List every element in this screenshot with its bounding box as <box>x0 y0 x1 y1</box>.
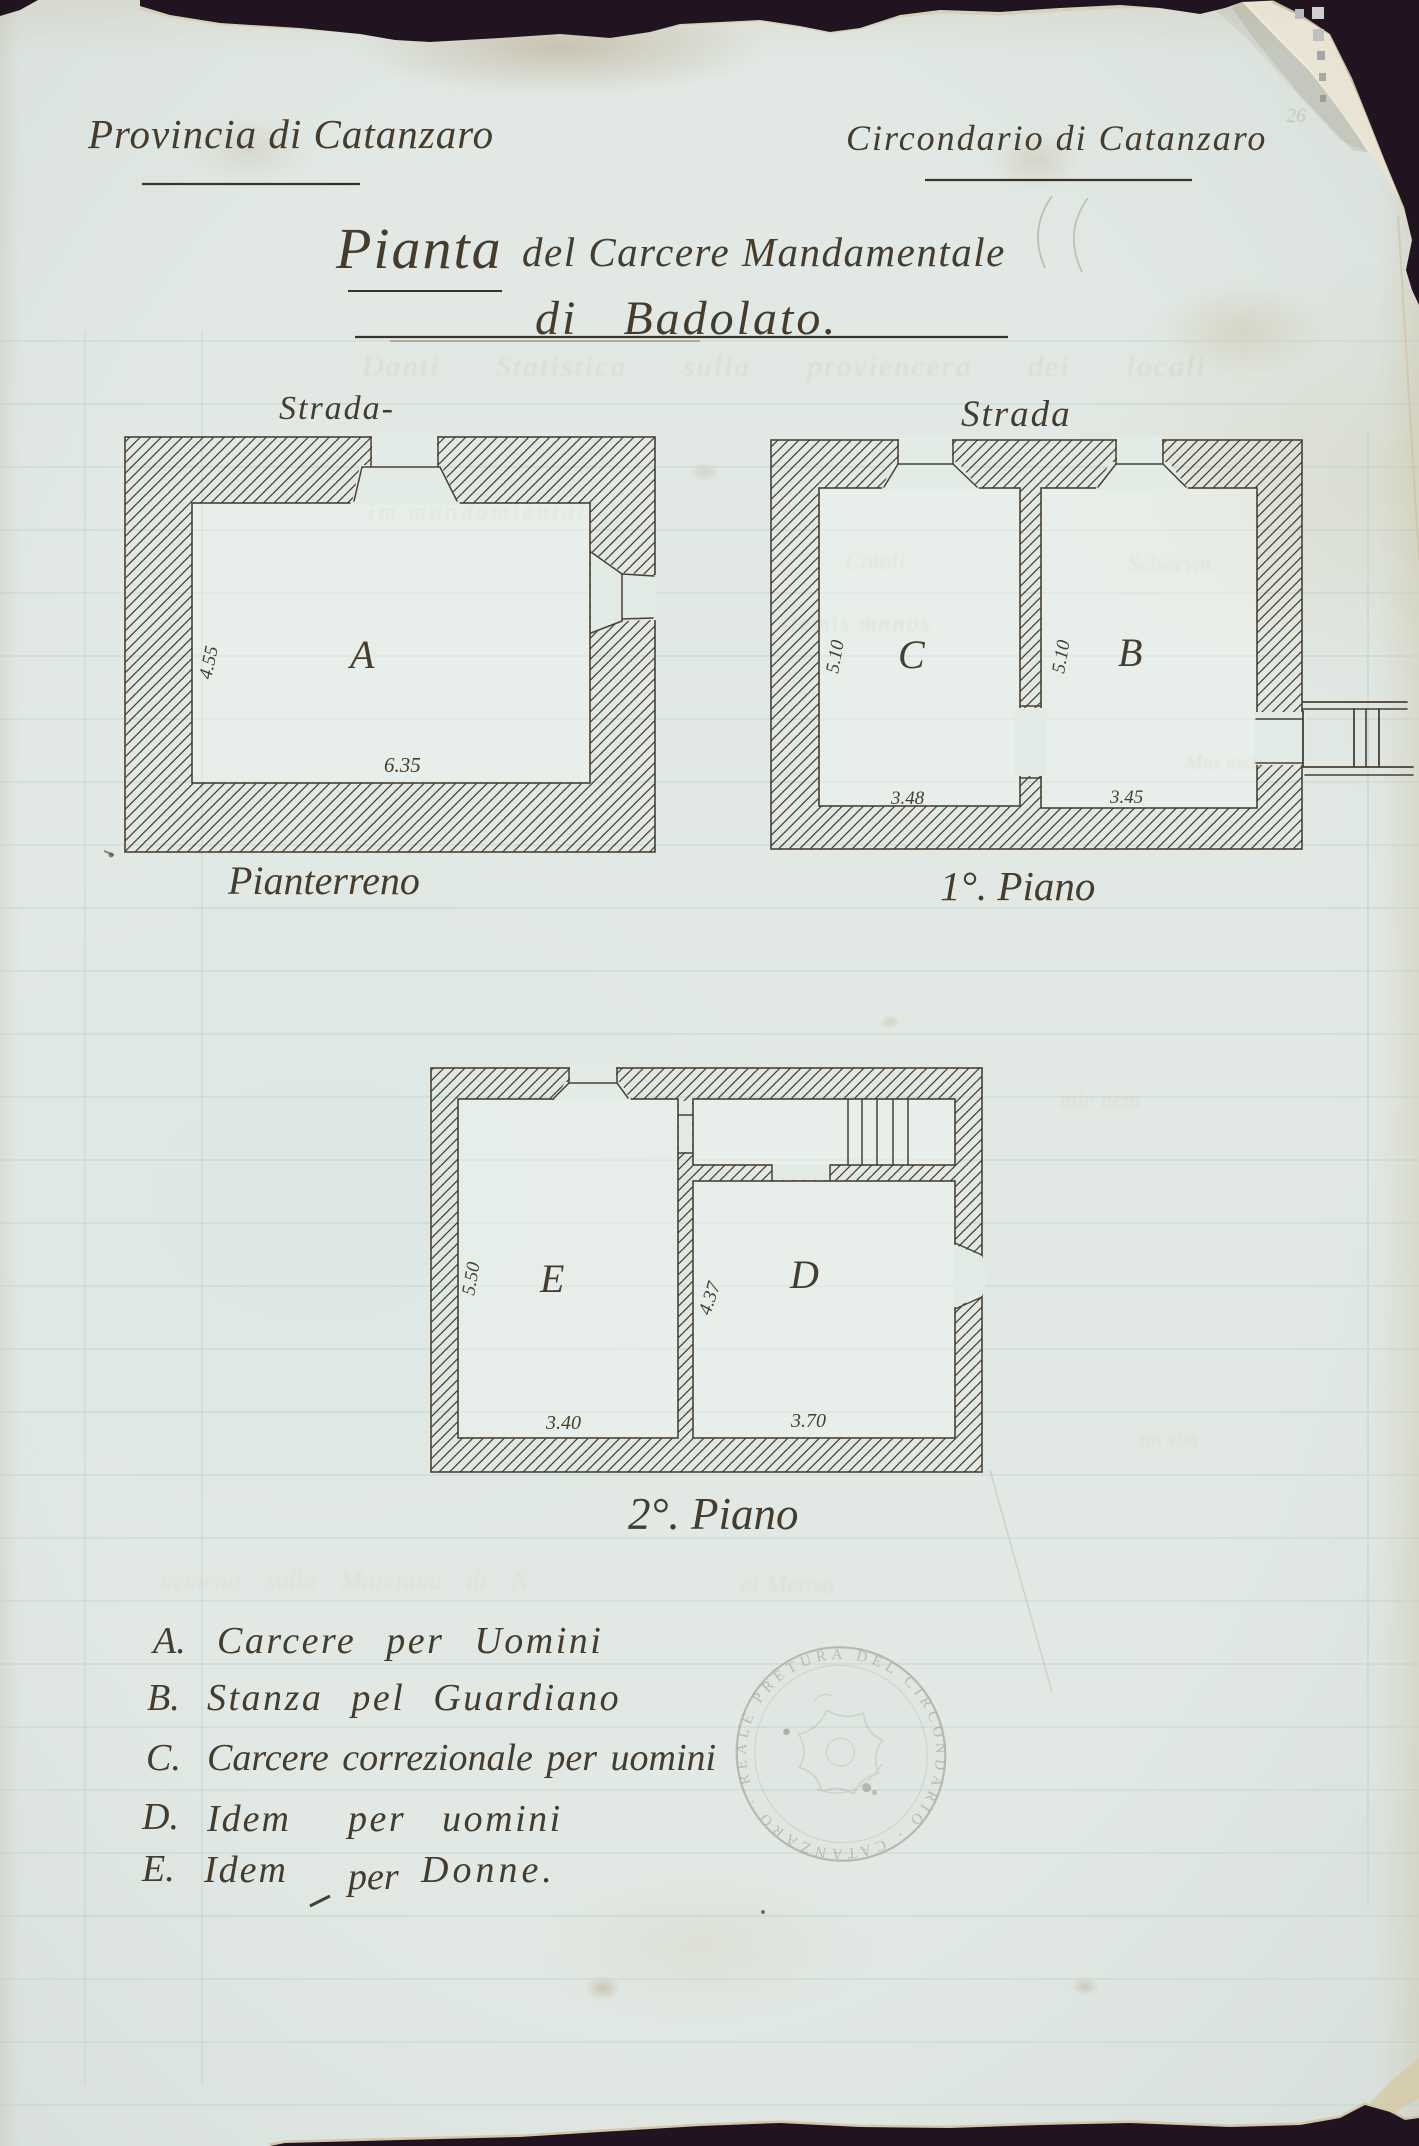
svg-text:E: E <box>539 1256 564 1301</box>
svg-text:A: A <box>347 632 375 677</box>
svg-text:6.35: 6.35 <box>384 753 421 777</box>
svg-text:3.45: 3.45 <box>1109 787 1143 808</box>
svg-text:C: C <box>898 632 926 677</box>
svg-text:3.40: 3.40 <box>545 1412 581 1434</box>
svg-text:D: D <box>789 1252 819 1297</box>
svg-text:B: B <box>1118 630 1142 675</box>
svg-text:3.70: 3.70 <box>790 1410 826 1432</box>
svg-text:3.48: 3.48 <box>890 788 925 809</box>
